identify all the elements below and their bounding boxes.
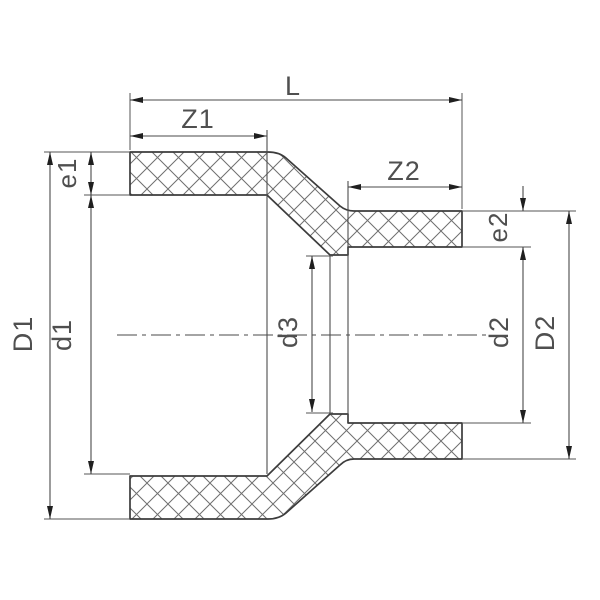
dimension-label-e2: e2 xyxy=(483,212,513,243)
technical-drawing-canvas: L Z1 Z2 e1 D1 d1 d3 e2 d2 D2 xyxy=(0,0,600,600)
dimension-label-d3: d3 xyxy=(273,316,303,348)
reducing-coupling-drawing: L Z1 Z2 e1 D1 d1 d3 e2 d2 D2 xyxy=(0,0,600,600)
dimension-label-d2: d2 xyxy=(484,316,514,348)
dimension-label-D2: D2 xyxy=(530,315,560,352)
dimension-label-d1: d1 xyxy=(47,319,77,351)
dimension-label-Z1: Z1 xyxy=(181,104,215,134)
dimension-label-L: L xyxy=(285,71,301,101)
dimension-label-e1: e1 xyxy=(52,158,82,189)
dimension-label-Z2: Z2 xyxy=(387,156,421,186)
dimension-label-D1: D1 xyxy=(8,316,38,353)
